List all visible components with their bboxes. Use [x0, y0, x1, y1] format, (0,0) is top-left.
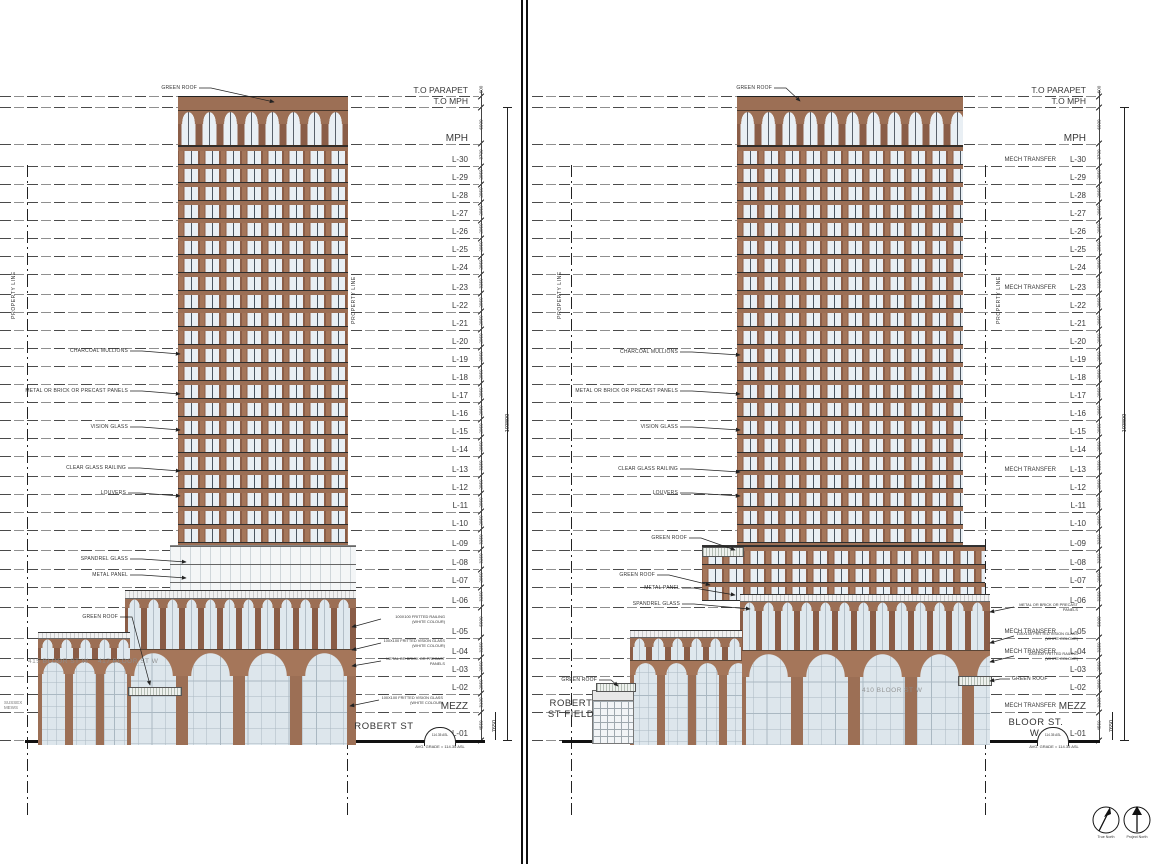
- level-label-l-29: L-29: [398, 173, 468, 182]
- property-line-label: PROPERTY LINE: [996, 272, 1002, 328]
- right-setback: [702, 545, 985, 601]
- level-label-mph: MPH: [1016, 133, 1086, 144]
- detail-note-100x100-fritted-railing-white-: 100X100 FRITTED RAILING (WHITE COLOUR): [383, 615, 445, 625]
- callout-metal-or-brick-or-precast-panels: METAL OR BRICK OR PRECAST PANELS: [498, 388, 678, 394]
- level-label-t-o-mph: T.O MPH: [1016, 96, 1086, 106]
- overall-dim-tick: [1120, 740, 1129, 741]
- level-label-l-26: L-26: [1016, 227, 1086, 236]
- callout-metal-or-brick-or-precast-panels: METAL OR BRICK OR PRECAST PANELS: [0, 388, 128, 394]
- right-podium-big-arches: [740, 651, 990, 745]
- callout-green-roof: GREEN ROOF: [17, 85, 197, 91]
- level-label-l-25: L-25: [398, 245, 468, 254]
- mech-transfer-label: MECH TRANSFER: [978, 285, 1056, 291]
- right-mid-podium: [630, 630, 742, 742]
- overall-dim-tick: [503, 107, 512, 108]
- callout-green-roof: GREEN ROOF: [1012, 676, 1048, 682]
- side-label-sussex-mews: SUSSEX MEWS: [4, 700, 30, 711]
- right-tower-mph-arches: [737, 111, 963, 146]
- right-setback-green-roof: [702, 547, 744, 557]
- dimension-guide-line: [1099, 90, 1100, 742]
- right-tower-parapet: [737, 96, 963, 111]
- level-label-l-29: L-29: [1016, 173, 1086, 182]
- level-label-l-20: L-20: [1016, 337, 1086, 346]
- left-annex-small-arches: [38, 639, 130, 660]
- mech-transfer-label: MECH TRANSFER: [978, 467, 1056, 473]
- level-label-l-14: L-14: [1016, 445, 1086, 454]
- level-label-l-19: L-19: [1016, 355, 1086, 364]
- level-label-l-15: L-15: [1016, 427, 1086, 436]
- left-podium-small-arches: [125, 599, 356, 650]
- level-label-t-o-parapet: T.O PARAPET: [1016, 85, 1086, 95]
- level-label-l-09: L-09: [398, 539, 468, 548]
- level-label-t-o-mph: T.O MPH: [398, 96, 468, 106]
- level-label-l-26: L-26: [398, 227, 468, 236]
- level-label-l-30: L-30: [398, 155, 468, 164]
- callout-spandrel-glass: SPANDREL GLASS: [0, 556, 128, 562]
- property-line-label: PROPERTY LINE: [11, 267, 17, 323]
- callout-green-roof: GREEN ROOF: [0, 614, 118, 620]
- level-label-l-20: L-20: [398, 337, 468, 346]
- right-podium: [740, 594, 990, 742]
- dimension-guide-line: [481, 90, 482, 742]
- callout-clear-glass-railing: CLEAR GLASS RAILING: [0, 465, 126, 471]
- left-podium: [125, 590, 356, 742]
- overall-dim-tick: [503, 740, 512, 741]
- level-label-l-25: L-25: [1016, 245, 1086, 254]
- left-podium-cap: [125, 590, 356, 599]
- callout-vision-glass: VISION GLASS: [0, 424, 128, 430]
- level-label-l-21: L-21: [398, 319, 468, 328]
- right-podium-small-arches: [740, 602, 990, 651]
- level-label-l-24: L-24: [398, 263, 468, 272]
- level-label-l-02: L-02: [1016, 683, 1086, 692]
- field-label-robert-st-field: ROBERT ST FIELD: [542, 698, 600, 721]
- property-line-label: PROPERTY LINE: [351, 272, 357, 328]
- callout-charcoal-mullions: CHARCOAL MULLIONS: [0, 348, 128, 354]
- elevation-sheet: T.O PARAPET600T.O MPHMPH6000L-303700L-29…: [0, 0, 1161, 864]
- callout-green-roof: GREEN ROOF: [592, 85, 772, 91]
- right-mid-podium-cap: [630, 630, 742, 638]
- mech-transfer-label: MECH TRANSFER: [978, 157, 1056, 163]
- level-label-l-17: L-17: [398, 391, 468, 400]
- detail-note-100x100-fritted-vision-glass-w: 100X100 FRITTED VISION GLASS (WHITE COLO…: [1016, 632, 1078, 642]
- level-label-l-16: L-16: [1016, 409, 1086, 418]
- left-grade-note: AVG. GRADE = 114.35 ASL: [396, 744, 484, 749]
- level-label-l-02: L-02: [398, 683, 468, 692]
- callout-green-roof: GREEN ROOF: [417, 677, 597, 683]
- level-label-l-08: L-08: [1016, 558, 1086, 567]
- level-label-l-19: L-19: [398, 355, 468, 364]
- level-label-l-05: L-05: [398, 627, 468, 636]
- level-label-l-12: L-12: [1016, 483, 1086, 492]
- level-label-l-13: L-13: [398, 465, 468, 474]
- ghost-sign-417: 417 BLOOR ST W: [98, 658, 158, 665]
- level-label-l-11: L-11: [398, 501, 468, 510]
- level-label-l-10: L-10: [1016, 519, 1086, 528]
- level-label-l-16: L-16: [398, 409, 468, 418]
- property-line-label: PROPERTY LINE: [557, 267, 563, 323]
- left-tower-facade: [178, 146, 348, 547]
- left-tower: [178, 96, 348, 545]
- left-green-roof: [128, 687, 182, 696]
- right-tower: [737, 96, 963, 545]
- level-label-l-08: L-08: [398, 558, 468, 567]
- callout-green-roof: GREEN ROOF: [475, 572, 655, 578]
- level-label-l-06: L-06: [398, 596, 468, 605]
- detail-note-100x100-fritted-railing-white-: 100X100 FRITTED RAILING (WHITE COLOUR): [1016, 652, 1078, 662]
- street-label-robert-st: ROBERT ST: [352, 721, 416, 732]
- left-annex-cap: [38, 632, 130, 639]
- level-label-l-09: L-09: [1016, 539, 1086, 548]
- right-grade-note: AVG. GRADE = 114.35 ASL: [1010, 744, 1098, 749]
- callout-louvers: LOUVERS: [498, 490, 678, 496]
- ghost-sign-410: 410 BLOOR ST W: [862, 687, 922, 694]
- callout-green-roof: GREEN ROOF: [507, 535, 687, 541]
- mezz-dim-value: 7650: [1109, 717, 1115, 735]
- level-label-l-22: L-22: [398, 301, 468, 310]
- level-label-l-14: L-14: [398, 445, 468, 454]
- level-label-l-18: L-18: [1016, 373, 1086, 382]
- detail-note-metal-or-brick-or-precast-pane: METAL OR BRICK OR PRECAST PANELS: [1016, 603, 1078, 613]
- callout-clear-glass-railing: CLEAR GLASS RAILING: [498, 466, 678, 472]
- level-label-l-11: L-11: [1016, 501, 1086, 510]
- detail-note-metal-or-brick-or-precast-pane: METAL OR BRICK OR PRECAST PANELS: [383, 657, 445, 667]
- level-label-l-03: L-03: [1016, 665, 1086, 674]
- detail-note-100x100-fritted-vision-glass-w: 100X100 FRITTED VISION GLASS (WHITE COLO…: [381, 696, 443, 706]
- overall-dim-value: 103800: [1122, 413, 1128, 433]
- callout-charcoal-mullions: CHARCOAL MULLIONS: [498, 349, 678, 355]
- left-annex-arches: [38, 660, 130, 745]
- callout-metal-panel: METAL PANEL: [0, 572, 128, 578]
- level-label-t-o-parapet: T.O PARAPET: [398, 85, 468, 95]
- callout-louvers: LOUVERS: [0, 490, 126, 496]
- level-label-l-22: L-22: [1016, 301, 1086, 310]
- panel-separator-line-1: [521, 0, 523, 864]
- left-annex: [38, 632, 130, 742]
- right-podium-green-roof: [958, 676, 992, 686]
- callout-vision-glass: VISION GLASS: [498, 424, 678, 430]
- level-label-l-07: L-07: [1016, 576, 1086, 585]
- level-label-l-10: L-10: [398, 519, 468, 528]
- level-label-l-18: L-18: [398, 373, 468, 382]
- level-label-l-07: L-07: [398, 576, 468, 585]
- level-label-l-12: L-12: [398, 483, 468, 492]
- right-mid-podium-arches: [630, 661, 742, 745]
- right-annex-green-roof: [596, 683, 636, 692]
- level-label-l-23: L-23: [398, 283, 468, 292]
- left-podium-big-arches: [125, 650, 356, 745]
- right-podium-cap: [740, 594, 990, 602]
- detail-note-100x100-fritted-vision-glass-w: 100X100 FRITTED VISION GLASS (WHITE COLO…: [383, 639, 445, 649]
- right-tower-facade: [737, 146, 963, 547]
- overall-dim-tick: [1120, 107, 1129, 108]
- level-label-l-27: L-27: [398, 209, 468, 218]
- left-tower-mph-arches: [178, 111, 348, 146]
- level-label-l-28: L-28: [398, 191, 468, 200]
- level-label-l-24: L-24: [1016, 263, 1086, 272]
- right-mid-podium-small-arches: [630, 638, 742, 661]
- level-label-l-27: L-27: [1016, 209, 1086, 218]
- level-label-l-17: L-17: [1016, 391, 1086, 400]
- mezz-dim-value: 7650: [492, 717, 498, 735]
- ghost-sign-415: 415 BLOOR ST W: [28, 658, 88, 665]
- level-label-l-15: L-15: [398, 427, 468, 436]
- level-label-l-28: L-28: [1016, 191, 1086, 200]
- level-label-l-21: L-21: [1016, 319, 1086, 328]
- left-tower-parapet: [178, 96, 348, 111]
- panel-separator-line-2: [526, 0, 528, 864]
- level-label-mph: MPH: [398, 133, 468, 144]
